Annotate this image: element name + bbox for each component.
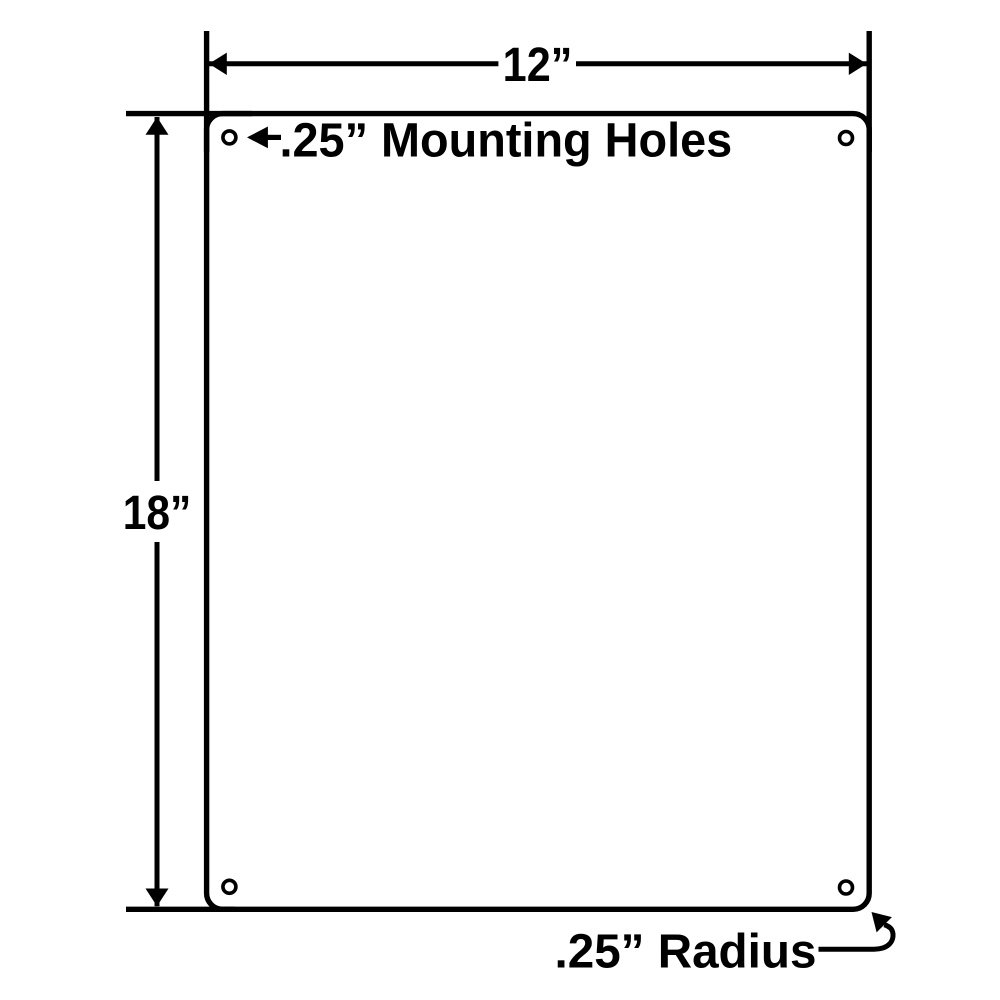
svg-text:18”: 18” [123, 486, 192, 540]
svg-text:.25” Radius: .25” Radius [555, 925, 817, 978]
svg-text:12”: 12” [503, 38, 573, 92]
svg-text:.25” Mounting Holes: .25” Mounting Holes [280, 114, 733, 168]
